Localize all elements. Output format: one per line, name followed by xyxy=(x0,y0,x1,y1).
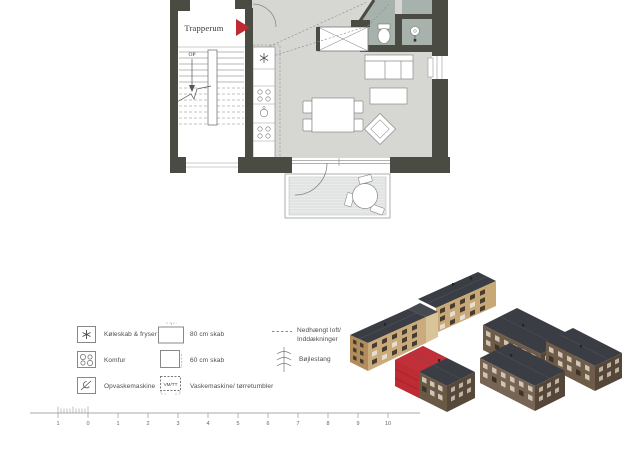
scale-label: 4 xyxy=(206,421,209,427)
washer-symbol-text: VM/TT xyxy=(164,382,178,387)
legend-label: Inddækninger xyxy=(297,336,338,343)
scale-label: 6 xyxy=(266,421,269,427)
dishwasher-symbol xyxy=(77,377,96,394)
scale-labels: 1 0 1 2 3 4 5 6 7 8 9 10 xyxy=(56,421,391,427)
legend-label: Komfur xyxy=(104,357,126,364)
dining-set xyxy=(303,98,363,132)
stairwell: OP Trapperum xyxy=(177,19,250,125)
scale-label: 10 xyxy=(385,421,391,427)
coffee-table xyxy=(370,88,407,104)
scale-label: 3 xyxy=(176,421,179,427)
scale-label: 0 xyxy=(86,421,89,427)
legend-label: Nedhængt loft/ xyxy=(297,327,341,334)
cabinet-60-symbol xyxy=(160,350,185,369)
legend-label: Køleskab & fryser xyxy=(104,331,157,338)
stairs-up-label: OP xyxy=(188,52,195,58)
chair xyxy=(303,101,312,113)
living-window xyxy=(432,56,448,79)
toilet xyxy=(378,24,390,44)
stairwell-window xyxy=(186,159,238,172)
balcony-door xyxy=(292,158,390,166)
fridge-symbol xyxy=(77,326,96,343)
chair xyxy=(354,101,363,113)
scale-label: 7 xyxy=(296,421,299,427)
scale-label: 9 xyxy=(356,421,359,427)
legend-label: Opvaskemaskine xyxy=(104,383,155,390)
kitchen-counter xyxy=(253,47,275,158)
suspended-ceiling-symbol xyxy=(272,329,292,334)
balcony-table xyxy=(353,184,378,209)
chair xyxy=(303,119,312,131)
balcony xyxy=(285,163,390,218)
building-highlighted xyxy=(395,346,475,412)
scale-label: 8 xyxy=(326,421,329,427)
stove-symbol xyxy=(77,351,96,368)
scale-label: 5 xyxy=(236,421,239,427)
scale-fine-ticks xyxy=(58,407,88,414)
scale-label: 1 xyxy=(56,421,59,427)
cabinet-80-symbol xyxy=(158,322,185,344)
scale-label: 1 xyxy=(116,421,119,427)
scale-major-ticks xyxy=(58,413,388,418)
legend-label: Bøjlestang xyxy=(299,356,331,363)
legend-label: 80 cm skab xyxy=(190,331,224,338)
stairwell-label: Trapperum xyxy=(184,23,223,33)
clothes-rail-symbol xyxy=(274,346,294,373)
sofa xyxy=(365,55,413,79)
scale-bar: 1 0 1 2 3 4 5 6 7 8 9 10 xyxy=(28,404,422,430)
washer-dryer-symbol: VM/TT xyxy=(160,376,185,396)
stair-stringer xyxy=(208,50,217,125)
window-sill xyxy=(428,58,433,77)
site-3d-view xyxy=(350,253,625,420)
legend-label: 60 cm skab xyxy=(190,357,224,364)
drawing-sheet: OP Trapperum xyxy=(0,0,625,460)
scale-label: 2 xyxy=(146,421,149,427)
floor-plan: OP Trapperum xyxy=(163,0,455,220)
legend-label: Vaskemaskine/ tørretumbler xyxy=(190,383,273,390)
chair xyxy=(354,119,363,131)
dining-table xyxy=(312,98,354,132)
